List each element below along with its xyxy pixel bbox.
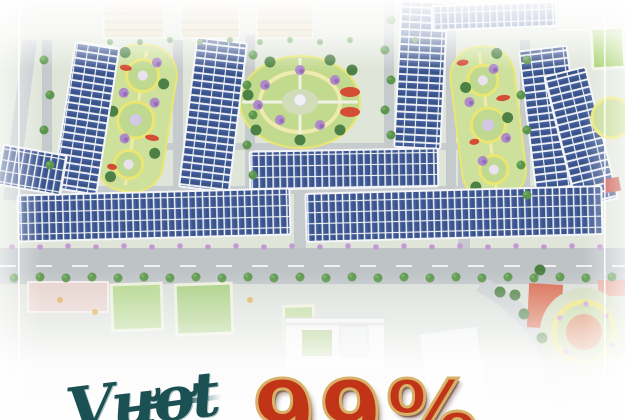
signature-script-text: Vượt bbox=[63, 363, 221, 420]
percent-headline: 99% bbox=[252, 369, 481, 420]
ad-image: Vượt 99% bbox=[0, 0, 625, 420]
aerial-render bbox=[0, 0, 625, 420]
top-haze bbox=[0, 0, 625, 70]
frame-line-left bbox=[18, 0, 20, 420]
frame-line-right bbox=[604, 0, 606, 420]
haze-overlays bbox=[0, 0, 625, 420]
